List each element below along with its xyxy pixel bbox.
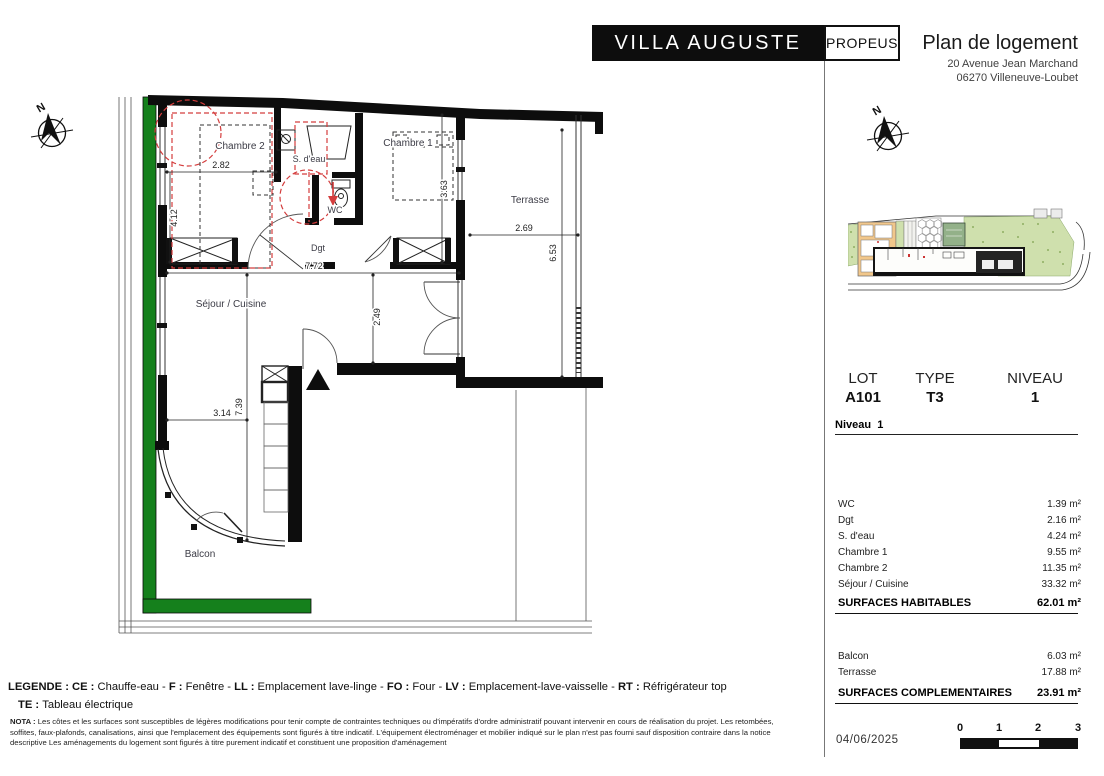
dimension-dots (165, 113, 579, 541)
niveau-label: NIVEAU (990, 370, 1080, 387)
level-heading-rule (835, 434, 1078, 435)
entrance-arrow (306, 369, 330, 390)
lot-value: A101 (828, 389, 898, 406)
scale-bar (960, 738, 1078, 749)
legend-line1: LEGENDE : CE : Chauffe-eau - F : Fenêtre… (8, 681, 798, 693)
room-label-sejour: Séjour / Cuisine (196, 299, 267, 310)
surface-row: Chambre 211.35 m² (835, 563, 1092, 574)
type-value: T3 (900, 389, 970, 406)
surface-row: WC1.39 m² (835, 499, 1092, 510)
dim-3-63: 3.63 (439, 180, 449, 198)
surface-row: S. d'eau4.24 m² (835, 531, 1092, 542)
scale-bar-white-segment (999, 740, 1039, 747)
surface-row: Dgt2.16 m² (835, 515, 1092, 526)
room-label-dgt: Dgt (311, 243, 326, 253)
site-mid-strip (896, 221, 916, 248)
project-title: VILLA AUGUSTE (614, 32, 801, 55)
level-heading: Niveau 1 (835, 419, 1078, 431)
legend-line2: TE : Tableau électrique (18, 699, 418, 711)
surface-row: Chambre 19.55 m² (835, 547, 1092, 558)
north-compass: N (31, 101, 73, 148)
floor-plan: 2.82 4.12 7.72 3.63 2.49 7.39 3.14 2.69 … (0, 85, 830, 675)
lot-label: LOT (828, 370, 898, 387)
site-plan (848, 202, 1092, 297)
address-line1: 20 Avenue Jean Marchand (880, 58, 1078, 70)
dim-2-82: 2.82 (212, 160, 230, 170)
room-label-wc: WC (328, 205, 343, 215)
scale-tick-3: 3 (1068, 722, 1088, 734)
surfaces-total-row: SURFACES HABITABLES62.01 m² (835, 597, 1092, 609)
terrasse-railing (576, 115, 581, 377)
address-line2: 06270 Villeneuve-Loubet (880, 72, 1078, 84)
nota-text: NOTA : Les côtes et les surfaces sont su… (10, 717, 792, 749)
site-north-compass: N (858, 100, 918, 162)
scale-tick-1: 1 (989, 722, 1009, 734)
surfaces-total-rule (835, 613, 1078, 614)
room-labels: Chambre 2 S. d'eau WC Chambre 1 Terrasse… (185, 138, 550, 560)
site-hex-paving (916, 218, 942, 249)
site-pool (943, 223, 965, 246)
surface-row: Balcon6.03 m² (835, 651, 1092, 662)
plan-sheet: VILLA AUGUSTE PROPEUS Plan de logement 2… (0, 0, 1104, 776)
site-building (874, 248, 1024, 276)
type-label: TYPE (900, 370, 970, 387)
balcony-glazing (158, 448, 285, 546)
surface-row: Terrasse17.88 m² (835, 667, 1092, 678)
plan-date: 04/06/2025 (836, 734, 899, 746)
complementaires-total-rule (835, 703, 1078, 704)
dim-3-14: 3.14 (213, 408, 231, 418)
dim-2-49: 2.49 (372, 308, 382, 326)
project-title-bar: VILLA AUGUSTE (592, 25, 824, 61)
scale-tick-0: 0 (950, 722, 970, 734)
room-label-terrasse: Terrasse (511, 195, 550, 206)
niveau-value: 1 (990, 389, 1080, 406)
surface-row: Séjour / Cuisine33.32 m² (835, 579, 1092, 590)
doc-title: Plan de logement (880, 32, 1078, 55)
site-green-left (848, 224, 858, 266)
room-label-chambre1: Chambre 1 (383, 138, 433, 149)
dim-7-72: 7.72 (305, 261, 323, 271)
dim-4-12: 4.12 (169, 209, 179, 227)
complementaires-total-row: SURFACES COMPLEMENTAIRES23.91 m² (835, 687, 1092, 699)
dim-7-39: 7.39 (234, 398, 244, 416)
north-label: N (35, 101, 48, 115)
scale-tick-2: 2 (1028, 722, 1048, 734)
dim-6-53: 6.53 (548, 244, 558, 262)
room-label-chambre2: Chambre 2 (215, 141, 265, 152)
north-label: N (871, 104, 884, 118)
dim-2-69: 2.69 (515, 223, 533, 233)
kitchen-units (262, 366, 288, 512)
door-swings (248, 214, 460, 369)
room-label-balcon: Balcon (185, 549, 216, 560)
room-label-sdeau: S. d'eau (293, 154, 326, 164)
